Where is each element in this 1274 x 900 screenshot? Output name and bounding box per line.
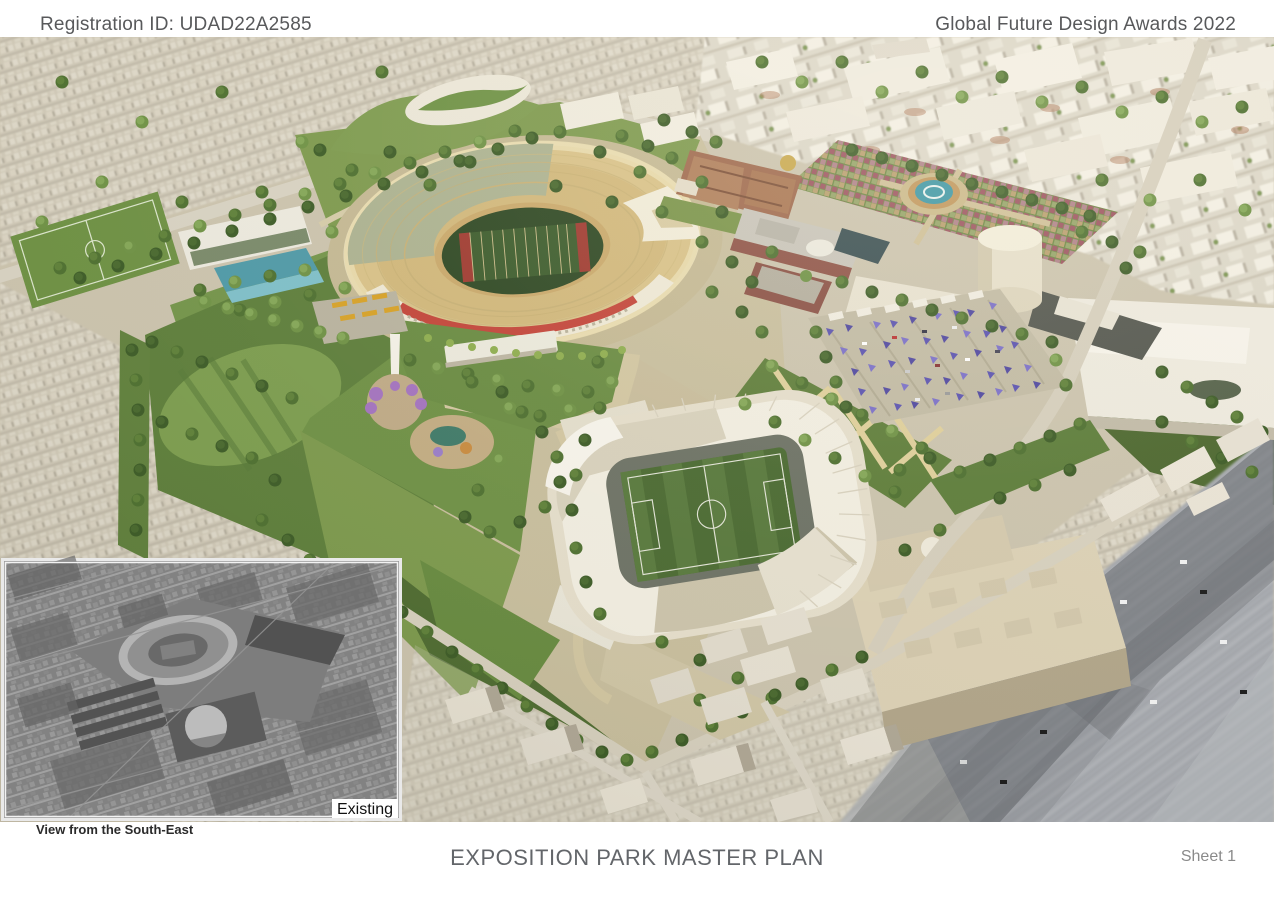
svg-text:Existing: Existing bbox=[337, 801, 393, 818]
